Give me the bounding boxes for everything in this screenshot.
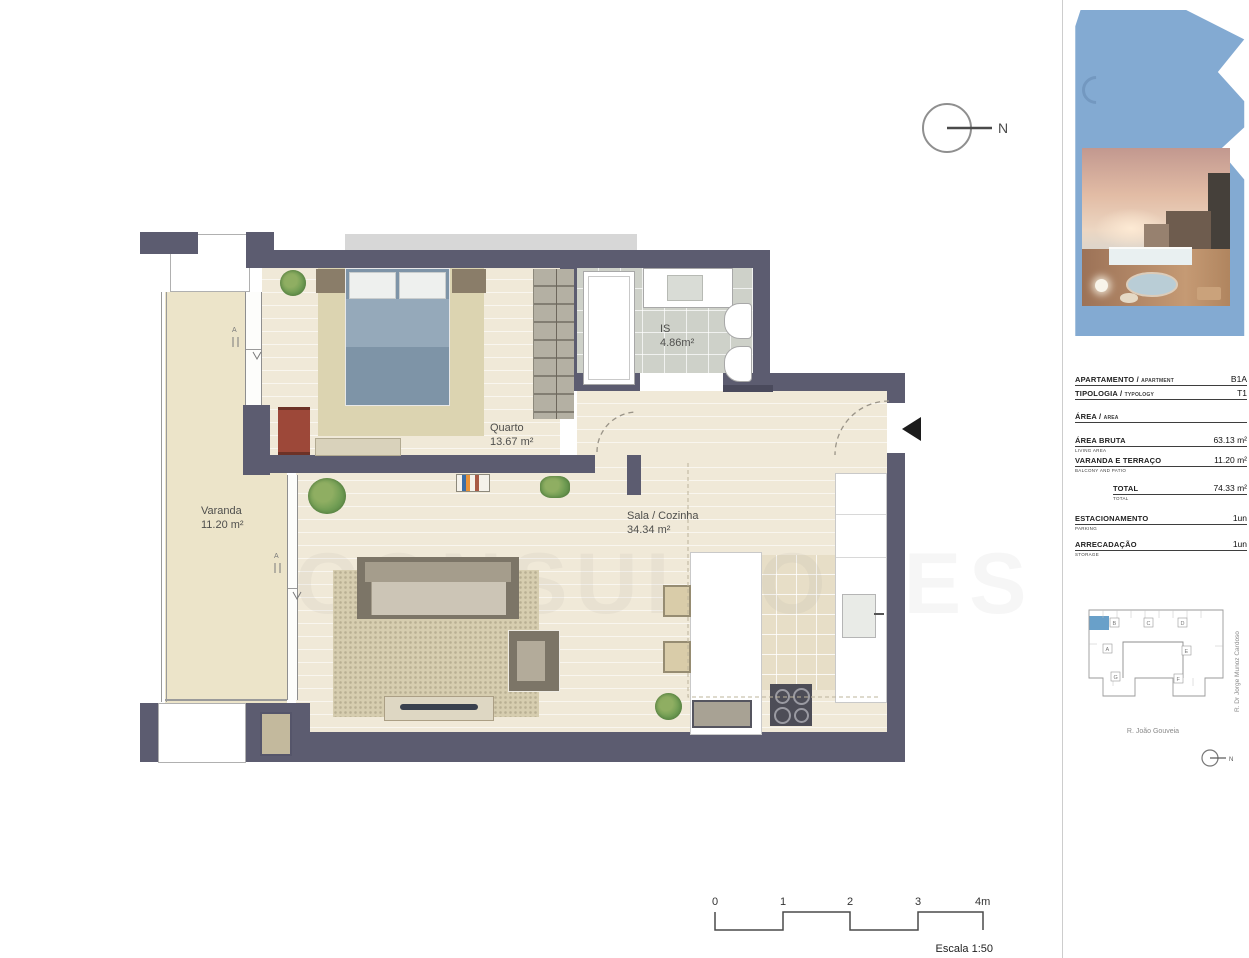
entry-door-arc — [835, 401, 889, 455]
room-area: 11.20 m² — [201, 518, 244, 532]
door-mark-a-2: A — [274, 553, 279, 560]
room-name: Varanda — [201, 504, 244, 518]
site-plan: B C D A E G F — [1083, 598, 1231, 713]
door-mark-a-1: A — [232, 327, 237, 334]
site-unit-a: A — [1106, 647, 1110, 653]
logo-mark — [1076, 70, 1116, 110]
spec-row-estacionamento: ESTACIONAMENTO 1un PARKING — [1075, 513, 1247, 531]
spec-row-apartamento: APARTAMENTO / APARTMENT B1A — [1075, 374, 1247, 386]
door-direction-marks — [233, 337, 301, 599]
floorplan-sheet: CONSULTORES — [0, 0, 1249, 958]
photo-table — [1120, 293, 1138, 302]
photo-building-mid — [1166, 211, 1210, 252]
site-unit-highlight — [1089, 616, 1109, 630]
photo-chair — [1197, 287, 1221, 300]
site-unit-e: E — [1185, 649, 1189, 655]
scale-tick-1: 1 — [780, 896, 786, 908]
room-area: 34.34 m² — [627, 523, 699, 537]
room-area: 13.67 m² — [490, 435, 533, 449]
site-unit-b: B — [1113, 621, 1117, 627]
north-arrow: N — [900, 85, 1030, 175]
room-label-varanda: Varanda 11.20 m² — [201, 504, 244, 532]
room-name: IS — [660, 322, 694, 336]
room-name: Sala / Cozinha — [627, 509, 699, 523]
spec-row-varanda: VARANDA E TERRAÇO 11.20 m² BALCONY AND P… — [1075, 455, 1247, 473]
entry-arrow — [902, 417, 921, 441]
spec-row-area: ÁREA / AREA — [1075, 412, 1247, 423]
photo-building-far — [1144, 224, 1169, 249]
spec-row-area-bruta: ÁREA BRUTA 63.13 m² LIVING AREA — [1075, 435, 1247, 453]
scale-tick-0: 0 — [712, 896, 718, 908]
scale-caption: Escala 1:50 — [936, 943, 993, 955]
scale-bar: 0 1 2 3 4m Escala 1:50 — [690, 880, 1020, 958]
building-photo — [1082, 148, 1230, 306]
photo-pool — [1109, 247, 1192, 265]
north-label: N — [998, 120, 1008, 136]
sidebar: APARTAMENTO / APARTMENT B1A TIPOLOGIA / … — [1063, 0, 1249, 958]
spec-row-tipologia: TIPOLOGIA / TYPOLOGY T1 — [1075, 388, 1247, 400]
spec-row-arrecadacao: ARRECADAÇÃO 1un STORAGE — [1075, 539, 1247, 557]
kitchen-dashed-outline — [688, 463, 880, 697]
street-label-bottom: R. João Gouveia — [1098, 728, 1208, 735]
room-label-sala: Sala / Cozinha 34.34 m² — [627, 509, 699, 537]
bedroom-door-arc — [597, 412, 637, 452]
room-label-is: IS 4.86m² — [660, 322, 694, 350]
site-unit-c: C — [1147, 621, 1151, 627]
room-name: Quarto — [490, 421, 533, 435]
scale-tick-2: 2 — [847, 896, 853, 908]
scale-tick-3: 3 — [915, 896, 921, 908]
room-area: 4.86m² — [660, 336, 694, 350]
site-unit-d: D — [1181, 621, 1185, 627]
scale-tick-4m: 4m — [975, 896, 990, 908]
spec-row-total: TOTAL 74.33 m² TOTAL — [1075, 483, 1247, 501]
site-unit-g: G — [1114, 675, 1118, 681]
street-label-right: R. Dr Jorge Munoz Cardoso — [1234, 562, 1241, 712]
site-north-arrow: N — [1198, 746, 1244, 770]
site-north-label: N — [1229, 757, 1233, 763]
spec-table: APARTAMENTO / APARTMENT B1A TIPOLOGIA / … — [1075, 374, 1247, 559]
room-label-quarto: Quarto 13.67 m² — [490, 421, 533, 449]
